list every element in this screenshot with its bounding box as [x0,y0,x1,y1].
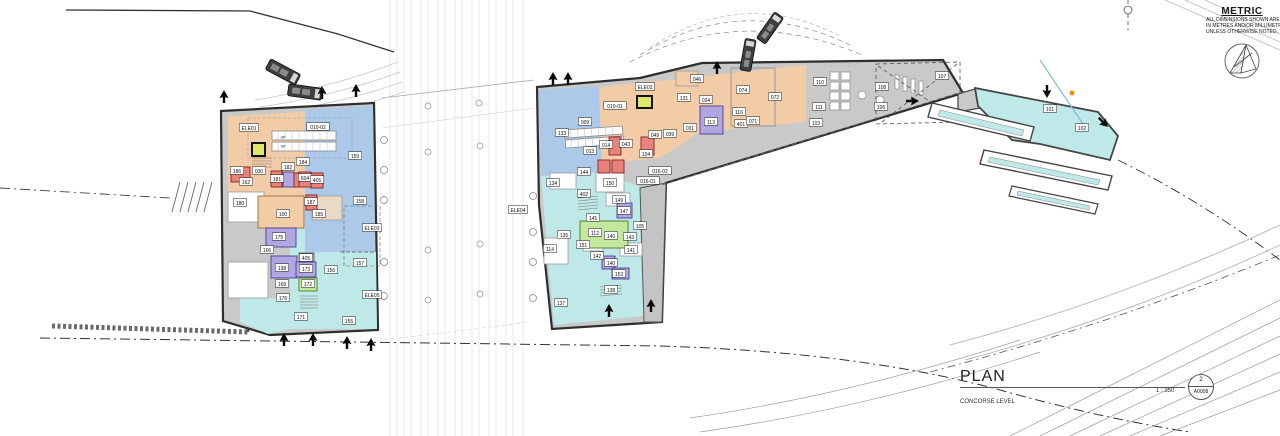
room-label-147: 147 [617,207,630,215]
svg-text:146: 146 [607,234,616,240]
room-label-106: 106 [874,103,887,111]
room-label-134: 134 [546,179,559,187]
room-label-030: 030 [252,167,265,175]
room-label-159: 159 [348,152,361,160]
svg-text:ELE05: ELE05 [364,293,379,299]
room-label-146: 146 [604,232,617,240]
room-block-red [598,160,610,173]
svg-text:140: 140 [607,261,616,267]
room-label-151: 151 [576,241,589,249]
track-column-markers [425,100,483,303]
room-label-107: 107 [935,72,948,80]
room-label-172: 172 [301,280,314,288]
room-label-072: 072 [768,93,781,101]
rail-tracks [382,0,534,436]
entrance-arrow-icon [1043,85,1052,98]
room-label-187: 187 [304,198,317,206]
drawing-scale: 1 : 350 [1156,388,1174,394]
room-label-ELE02: ELE02 [635,83,655,91]
svg-text:186: 186 [233,169,242,175]
room-label-014: 014 [599,141,612,149]
room-label-049: 049 [648,131,661,139]
svg-text:151: 151 [579,243,588,249]
svg-text:UP: UP [281,144,287,148]
room-label-ELE05: ELE05 [362,291,382,299]
svg-text:147: 147 [620,209,629,215]
room-label-046: 046 [690,75,703,83]
svg-text:112: 112 [591,231,599,237]
svg-text:405: 405 [302,256,311,262]
svg-text:009: 009 [581,120,590,126]
room-label-074: 074 [736,86,749,94]
room-label-013: 013 [583,147,596,155]
svg-text:156: 156 [327,268,336,274]
room-label-181: 181 [270,175,283,183]
room-label-113: 113 [704,118,717,126]
room-label-180: 180 [233,199,246,207]
room-label-405: 405 [310,176,323,184]
floor-plan-canvas: ELE01010-02UPUP1591841820301861621816044… [0,0,1280,436]
room-label-034: 034 [699,96,712,104]
room-label-155: 155 [342,317,355,325]
svg-text:169: 169 [278,282,287,288]
svg-text:144: 144 [580,170,589,176]
room-label-101: 101 [1043,105,1056,113]
room-label-153: 153 [612,270,625,278]
svg-text:010-02: 010-02 [310,125,326,131]
title-block: PLAN CONCORSE LEVEL 1 : 350 2 A0008 [960,368,1210,408]
svg-text:198: 198 [278,266,287,272]
svg-text:157: 157 [356,261,365,267]
svg-text:049: 049 [651,133,660,139]
room-label-158: 158 [353,197,366,205]
svg-text:173: 173 [302,267,311,273]
svg-text:133: 133 [558,131,567,137]
sheet-reference-bubble: 2 A0008 [1188,374,1214,400]
room-label-103: 103 [809,119,822,127]
metric-note: METRIC ALL DIMENSIONS SHOWN ARE IN METRE… [1206,6,1278,90]
room-label-140: 140 [604,259,617,267]
svg-text:ELE03: ELE03 [364,226,379,232]
svg-text:103: 103 [812,121,821,127]
room-block-yellow [637,96,652,108]
room-block-red [612,160,624,173]
svg-text:116: 116 [735,110,743,116]
room-block-purple [283,172,294,187]
survey-point-marker [1070,91,1075,96]
room-label-185: 185 [312,210,325,218]
room-label-182: 182 [281,163,294,171]
svg-text:155: 155 [345,319,354,325]
entrance-arrow-icon [367,338,376,351]
entrance-arrow-icon [220,90,229,103]
svg-text:175: 175 [275,235,284,241]
room-label-031: 031 [683,124,696,132]
room-label-039: 039 [663,130,676,138]
svg-text:043: 043 [622,142,631,148]
svg-text:172: 172 [304,282,313,288]
entrance-arrow-icon [549,72,558,85]
svg-text:604: 604 [301,176,310,182]
entrance-arrow-icon [343,336,352,349]
room-label-137: 137 [554,299,567,307]
svg-text:072: 072 [771,95,780,101]
svg-text:187: 187 [307,200,316,206]
svg-text:158: 158 [356,199,365,205]
svg-text:039: 039 [666,132,675,138]
room-label-176: 176 [276,294,289,302]
svg-text:145: 145 [589,216,598,222]
svg-text:102: 102 [1078,126,1087,132]
sheet-number: 2 [1189,375,1213,387]
drawing-title: PLAN [960,368,1210,386]
room-label-157: 157 [353,259,366,267]
room-label-133: 133 [555,129,568,137]
room-label-166: 166 [260,246,273,254]
svg-text:110: 110 [816,80,824,86]
svg-text:104: 104 [642,152,651,158]
svg-text:138: 138 [607,288,616,294]
room-label-UP: UP [281,144,287,148]
room-label-043: 043 [619,140,632,148]
svg-text:031: 031 [686,126,695,132]
svg-text:114: 114 [546,247,554,253]
svg-text:016-01: 016-01 [640,179,656,185]
room-label-604: 604 [298,174,311,182]
room-label-173: 173 [299,265,312,273]
bus-1 [265,59,301,86]
svg-text:162: 162 [242,180,251,186]
room-label-150: 150 [603,179,616,187]
svg-text:141: 141 [627,248,636,254]
svg-text:142: 142 [593,254,602,260]
room-label-114: 114 [543,245,556,253]
room-label-149: 149 [612,196,625,204]
svg-text:180: 180 [236,201,245,207]
svg-text:176: 176 [279,296,288,302]
entrance-arrow-icon [309,333,318,346]
svg-text:166: 166 [263,248,272,254]
room-label-UP: UP [281,135,287,139]
svg-text:405: 405 [313,178,322,184]
room-label-401: 401 [734,120,747,128]
svg-text:101: 101 [1046,107,1055,113]
svg-text:108: 108 [878,85,887,91]
room-label-131: 131 [677,94,690,102]
room-label-141: 141 [624,246,637,254]
room-label-111: 111 [812,103,825,111]
room-label-175: 175 [272,233,285,241]
room-label-071: 071 [746,117,759,125]
svg-text:ELE02: ELE02 [637,85,652,91]
room-label-ELE03: ELE03 [362,224,382,232]
room-label-ELE01: ELE01 [239,124,259,132]
room-block-yellow [252,143,265,156]
room-label-145: 145 [586,214,599,222]
svg-text:149: 149 [615,198,624,204]
room-label-016-02: 016-02 [649,167,672,175]
svg-text:171: 171 [297,315,306,321]
svg-text:131: 131 [680,96,689,102]
bus-3 [756,12,783,45]
room-label-116: 116 [732,108,745,116]
svg-text:106: 106 [877,105,886,111]
room-label-112: 112 [588,229,601,237]
metric-title: METRIC [1206,6,1278,17]
svg-text:184: 184 [299,160,308,166]
svg-text:013: 013 [586,149,595,155]
svg-text:071: 071 [749,119,758,125]
room-label-102: 102 [1075,124,1088,132]
svg-text:034: 034 [702,98,711,104]
svg-text:402: 402 [580,192,589,198]
room-label-198: 198 [275,264,288,272]
sheet-reference: A0008 [1189,387,1213,397]
room-label-169: 169 [275,280,288,288]
svg-text:016-02: 016-02 [652,169,668,175]
svg-text:181: 181 [273,177,282,183]
room-label-110: 110 [813,78,826,86]
right-building [537,60,963,329]
svg-text:046: 046 [693,77,702,83]
svg-text:030: 030 [255,169,264,175]
svg-text:107: 107 [938,74,947,80]
svg-text:111: 111 [815,105,823,111]
svg-text:182: 182 [284,165,293,171]
room-label-105: 105 [633,222,646,230]
room-label-162: 162 [239,178,252,186]
room-label-009: 009 [578,118,591,126]
room-label-171: 171 [294,313,307,321]
room-label-402: 402 [577,190,590,198]
svg-text:ELE01: ELE01 [241,126,256,132]
room-label-135: 135 [557,231,570,239]
room-label-010-02: 010-02 [307,123,330,131]
svg-text:150: 150 [606,181,615,187]
room-label-186: 186 [230,167,243,175]
title-rule [960,387,1185,388]
north-arrow-icon [1212,37,1272,85]
room-label-016-01: 016-01 [637,177,660,185]
room-label-104: 104 [639,150,652,158]
drawing-subtitle: CONCORSE LEVEL [960,399,1015,405]
room-label-156: 156 [324,266,337,274]
svg-text:ELE04: ELE04 [510,208,525,214]
svg-text:100: 100 [279,212,288,218]
room-label-100: 100 [276,210,289,218]
svg-text:185: 185 [315,212,324,218]
svg-text:014: 014 [602,143,611,149]
room-label-108: 108 [875,83,888,91]
room-label-142: 142 [590,252,603,260]
svg-text:134: 134 [549,181,558,187]
svg-text:137: 137 [557,301,566,307]
svg-text:153: 153 [615,272,624,278]
svg-text:143: 143 [626,235,635,241]
metric-line-3: UNLESS OTHERWISE NOTED. [1206,29,1278,35]
svg-text:401: 401 [737,122,746,128]
room-label-ELE04: ELE04 [508,206,528,214]
bus-2 [287,84,322,101]
svg-text:010-01: 010-01 [607,104,623,110]
room-label-144: 144 [577,168,590,176]
svg-text:UP: UP [281,135,287,139]
room-label-405: 405 [299,254,312,262]
room-label-143: 143 [623,233,636,241]
svg-text:074: 074 [739,88,748,94]
room-label-138: 138 [604,286,617,294]
svg-text:135: 135 [560,233,569,239]
svg-text:159: 159 [351,154,360,160]
room-label-010-01: 010-01 [604,102,627,110]
svg-text:113: 113 [707,120,715,126]
svg-text:105: 105 [636,224,645,230]
room-label-184: 184 [296,158,309,166]
